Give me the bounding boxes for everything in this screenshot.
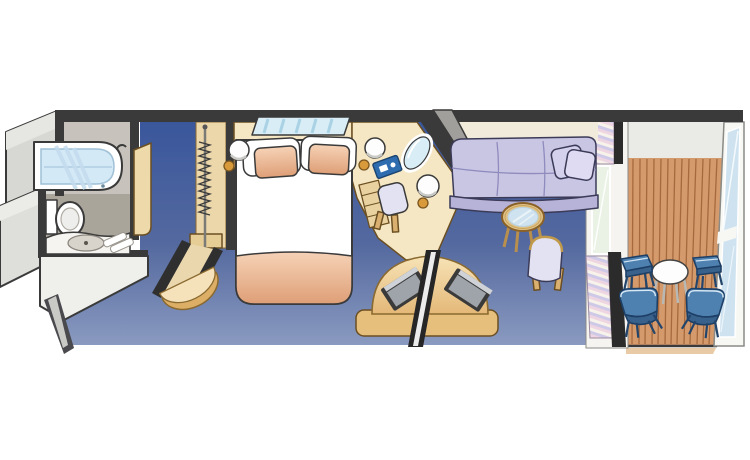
bathroom-door (134, 143, 151, 235)
toilet (46, 200, 84, 236)
sofa (450, 137, 598, 213)
deck-fascia (626, 348, 716, 354)
tub-drain (101, 184, 105, 188)
sink-drain (84, 241, 88, 245)
balcony (586, 112, 744, 354)
pillow-peach-left (254, 146, 298, 179)
queen-bed (236, 136, 357, 304)
floor-plan-canvas (0, 0, 750, 460)
curtain-bottom (586, 256, 612, 338)
bathtub (34, 142, 126, 190)
hanger-rod-cap (203, 125, 208, 130)
foot-blanket (236, 252, 352, 304)
stateroom-floor-plan (0, 0, 750, 460)
side-chair (528, 237, 564, 290)
sofa-pillow-2 (564, 149, 596, 181)
top-wall (55, 110, 743, 122)
side-chair-back (528, 237, 562, 282)
sink-counter (46, 230, 134, 255)
bath-wall-left-lower (38, 186, 46, 258)
pillow-peach-right (308, 144, 349, 175)
